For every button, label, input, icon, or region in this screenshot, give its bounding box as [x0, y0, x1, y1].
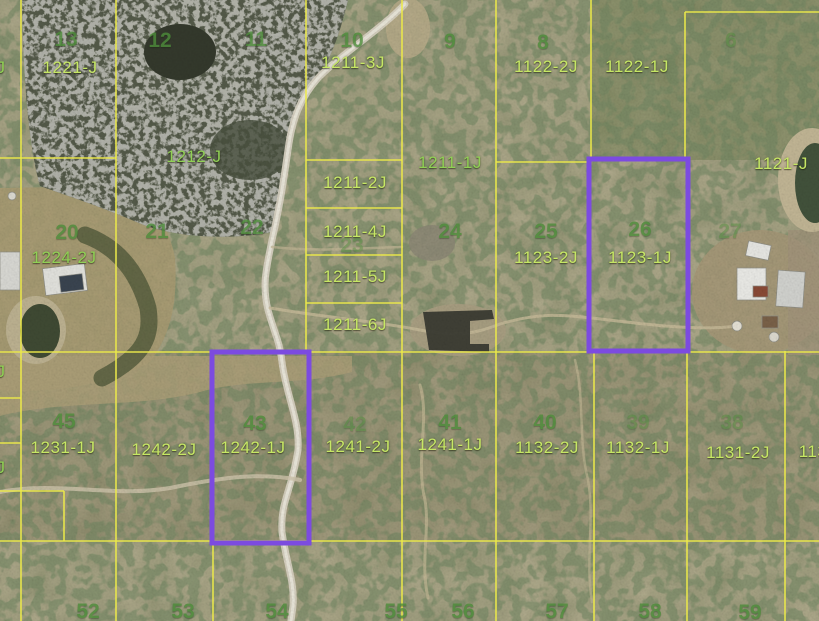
parcel-label-1122-1J[interactable]: 1122-1J: [605, 57, 669, 77]
parcel-label-1123-2J[interactable]: 1123-2J: [514, 248, 578, 268]
lot-number-25: 25: [534, 220, 557, 244]
lot-number-59: 59: [738, 601, 761, 621]
parcel-label-1212-J[interactable]: 1212-J: [167, 147, 222, 167]
lot-number-6: 6: [725, 29, 737, 53]
lot-number-26: 26: [628, 218, 651, 242]
lot-number-39: 39: [626, 411, 649, 435]
lot-number-22: 22: [240, 216, 263, 240]
lot-number-53: 53: [171, 600, 194, 621]
parcel-label-1211-6J[interactable]: 1211-6J: [323, 315, 387, 335]
map-canvas[interactable]: 1221-J1211-3J1122-2J1122-1J1212-J1211-1J…: [0, 0, 819, 621]
parcel-label-1211-1J[interactable]: 1211-1J: [418, 153, 482, 173]
parcel-label-1121-J[interactable]: 1121-J: [754, 154, 808, 174]
lot-number-41: 41: [438, 411, 461, 435]
lot-number-57: 57: [545, 600, 568, 621]
parcel-label-1242-2J[interactable]: 1242-2J: [132, 440, 197, 460]
parcel-label-113[interactable]: 113: [799, 442, 819, 462]
parcel-label-1123-1J[interactable]: 1123-1J: [608, 248, 672, 268]
parcel-label-1122-2J[interactable]: 1122-2J: [514, 57, 578, 77]
parcel-label-1241-1J[interactable]: 1241-1J: [418, 435, 483, 455]
parcel-label-J[interactable]: J: [0, 58, 6, 78]
lot-number-20: 20: [55, 221, 78, 245]
lot-number-43: 43: [243, 412, 266, 436]
parcel-label-1211-5J[interactable]: 1211-5J: [323, 267, 387, 287]
parcel-label-1211-2J[interactable]: 1211-2J: [323, 173, 387, 193]
parcel-label-1132-2J[interactable]: 1132-2J: [515, 438, 579, 458]
lot-number-27: 27: [718, 220, 741, 244]
lot-number-56: 56: [451, 600, 474, 621]
parcel-label-1221-J[interactable]: 1221-J: [43, 58, 98, 78]
map-labels-layer: 1221-J1211-3J1122-2J1122-1J1212-J1211-1J…: [0, 0, 819, 621]
lot-number-55: 55: [384, 600, 407, 621]
lot-number-9: 9: [444, 30, 456, 54]
lot-number-13: 13: [54, 28, 77, 52]
parcel-label-1131-2J[interactable]: 1131-2J: [706, 443, 770, 463]
lot-number-40: 40: [533, 411, 556, 435]
lot-number-58: 58: [638, 600, 661, 621]
lot-number-8: 8: [537, 31, 549, 55]
parcel-label-1224-2J[interactable]: 1224-2J: [32, 248, 97, 268]
parcel-label-1242-1J[interactable]: 1242-1J: [221, 438, 286, 458]
parcel-label-1132-1J[interactable]: 1132-1J: [606, 438, 670, 458]
lot-number-21: 21: [145, 220, 168, 244]
parcel-label-J[interactable]: J: [0, 458, 6, 478]
lot-number-38: 38: [720, 411, 743, 435]
lot-number-12: 12: [148, 29, 171, 53]
lot-number-42: 42: [343, 413, 366, 437]
parcel-label-1241-2J[interactable]: 1241-2J: [326, 437, 391, 457]
lot-number-45: 45: [52, 410, 75, 434]
lot-number-10: 10: [340, 29, 363, 53]
parcel-label-1231-1J[interactable]: 1231-1J: [31, 438, 96, 458]
lot-number-54: 54: [265, 600, 288, 621]
parcel-label-1211-3J[interactable]: 1211-3J: [321, 53, 385, 73]
lot-number-24: 24: [438, 220, 461, 244]
lot-number-52: 52: [76, 600, 99, 621]
parcel-label-J[interactable]: J: [0, 362, 6, 382]
lot-number-23: 23: [340, 234, 363, 258]
lot-number-11: 11: [245, 28, 267, 52]
